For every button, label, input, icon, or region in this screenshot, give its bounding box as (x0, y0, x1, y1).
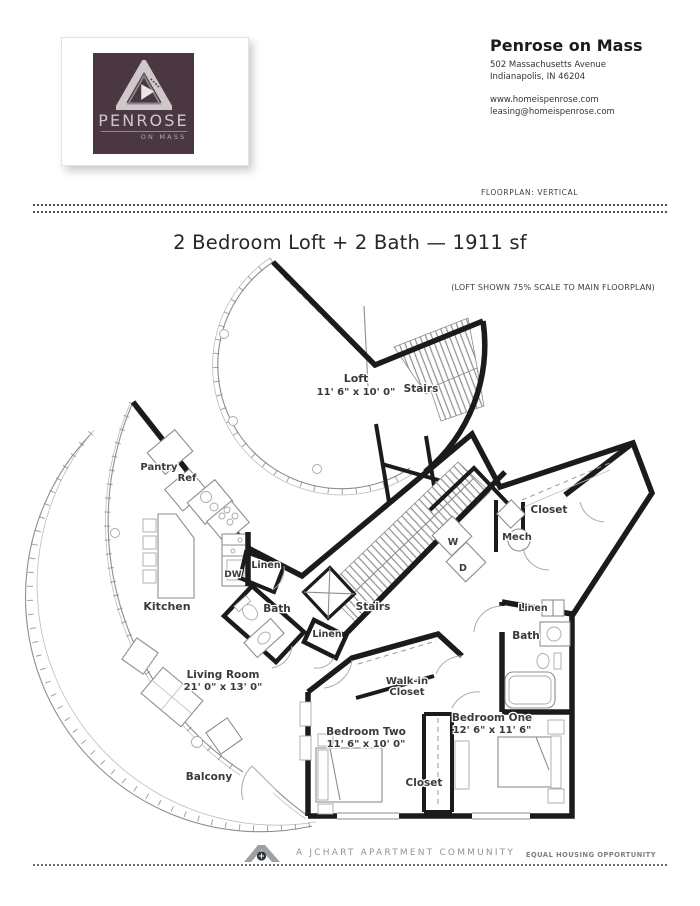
room-label: 11' 6" x 10' 0" (327, 739, 406, 750)
room-label: 21' 0" x 13' 0" (184, 682, 263, 693)
room-label: Balcony (186, 771, 233, 783)
community-text: A JCHART APARTMENT COMMUNITY (296, 848, 515, 858)
room-label: Linen (312, 629, 342, 640)
room-label: 11' 6" x 10' 0" (317, 387, 396, 398)
right-bath (474, 600, 572, 712)
floorplan-drawing: Loft11' 6" x 10' 0"StairsPantryRefKitche… (0, 0, 700, 906)
room-label: Linen (251, 560, 281, 571)
room-label: W (448, 537, 459, 548)
divider-dotted-bottom (33, 864, 667, 866)
room-label: Ref (178, 473, 197, 484)
room-label: DW (224, 570, 241, 580)
room-label: Bedroom Two (326, 726, 406, 738)
room-label: Bath (512, 630, 540, 642)
exterior-walls (133, 402, 652, 816)
bedroom-closet (424, 714, 452, 812)
room-label: Closet (531, 504, 568, 516)
bedroom-two (300, 660, 382, 816)
balcony-door (242, 766, 276, 800)
jchart-logo-icon (243, 841, 289, 865)
room-label: Closet (406, 777, 443, 789)
room-label: Pantry (140, 462, 178, 473)
equal-housing-text: EQUAL HOUSING OPPORTUNITY (526, 851, 656, 859)
room-label: Stairs (356, 601, 391, 613)
room-label: Walk-in (386, 676, 428, 687)
room-label: Bedroom One (452, 712, 532, 724)
room-label: Kitchen (143, 600, 190, 613)
room-label: Mech (502, 532, 532, 543)
room-label: Living Room (187, 669, 260, 681)
room-label: Bath (263, 603, 291, 615)
room-label: 12' 6" x 11' 6" (453, 725, 532, 736)
page: PENROSE ON MASS Penrose on Mass 502 Mass… (0, 0, 700, 906)
room-label: Linen (518, 603, 548, 614)
room-label: D (459, 563, 467, 574)
room-label: Stairs (404, 383, 439, 395)
main-plan (26, 402, 652, 832)
linen-under-stairs (304, 620, 346, 668)
room-label: Closet (389, 687, 424, 698)
room-label: Loft (344, 372, 369, 385)
kitchen-island (158, 514, 194, 598)
